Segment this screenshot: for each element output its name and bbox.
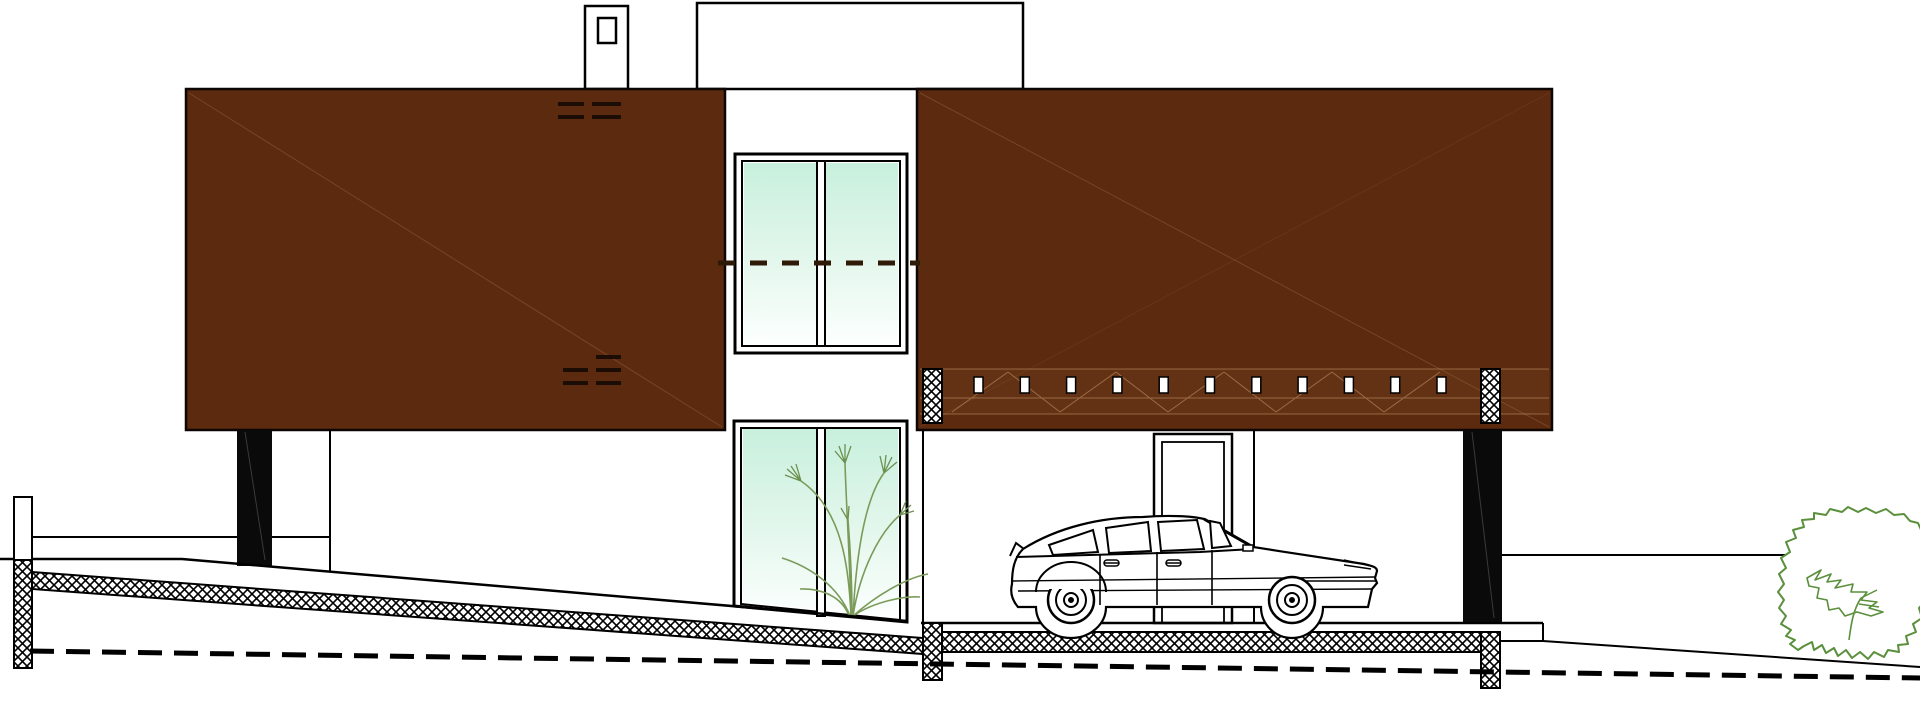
facade-slot: [1067, 377, 1076, 393]
pillar-left: [237, 430, 272, 566]
chimney-flue: [598, 18, 616, 43]
facade-slot: [1020, 377, 1029, 393]
upper-window: [718, 154, 920, 353]
facade-slot: [1391, 377, 1400, 393]
car-front-door-window: [1158, 520, 1204, 551]
facade-slot: [974, 377, 983, 393]
foundation-column-left: [923, 623, 942, 680]
facade-slot: [1252, 377, 1261, 393]
facade-slot: [1344, 377, 1353, 393]
elevation-canvas: [0, 0, 1920, 720]
facade-slot: [1298, 377, 1307, 393]
vent-band-cap-right: [1481, 369, 1500, 423]
car-mirror: [1243, 545, 1253, 551]
slab-hatch-band: [942, 632, 1481, 652]
facade-slot: [1437, 377, 1446, 393]
facade-slot: [1206, 377, 1215, 393]
car-front-wheel: [1269, 577, 1315, 623]
lower-window-mullion: [817, 428, 825, 616]
roof-box: [697, 3, 1023, 89]
facade-slot: [1159, 377, 1168, 393]
vent-band-tint: [920, 369, 1549, 414]
vent-band-cap-left: [923, 369, 942, 423]
foundation-column-right: [1481, 632, 1500, 688]
boundary-post-foot: [14, 560, 32, 668]
car-rear-door-window: [1106, 522, 1151, 553]
facade-slot: [1113, 377, 1122, 393]
tree: [1778, 507, 1920, 659]
upper-window-mullion: [817, 161, 825, 346]
pillar-right: [1463, 430, 1502, 622]
elevation-drawing: [0, 0, 1920, 720]
